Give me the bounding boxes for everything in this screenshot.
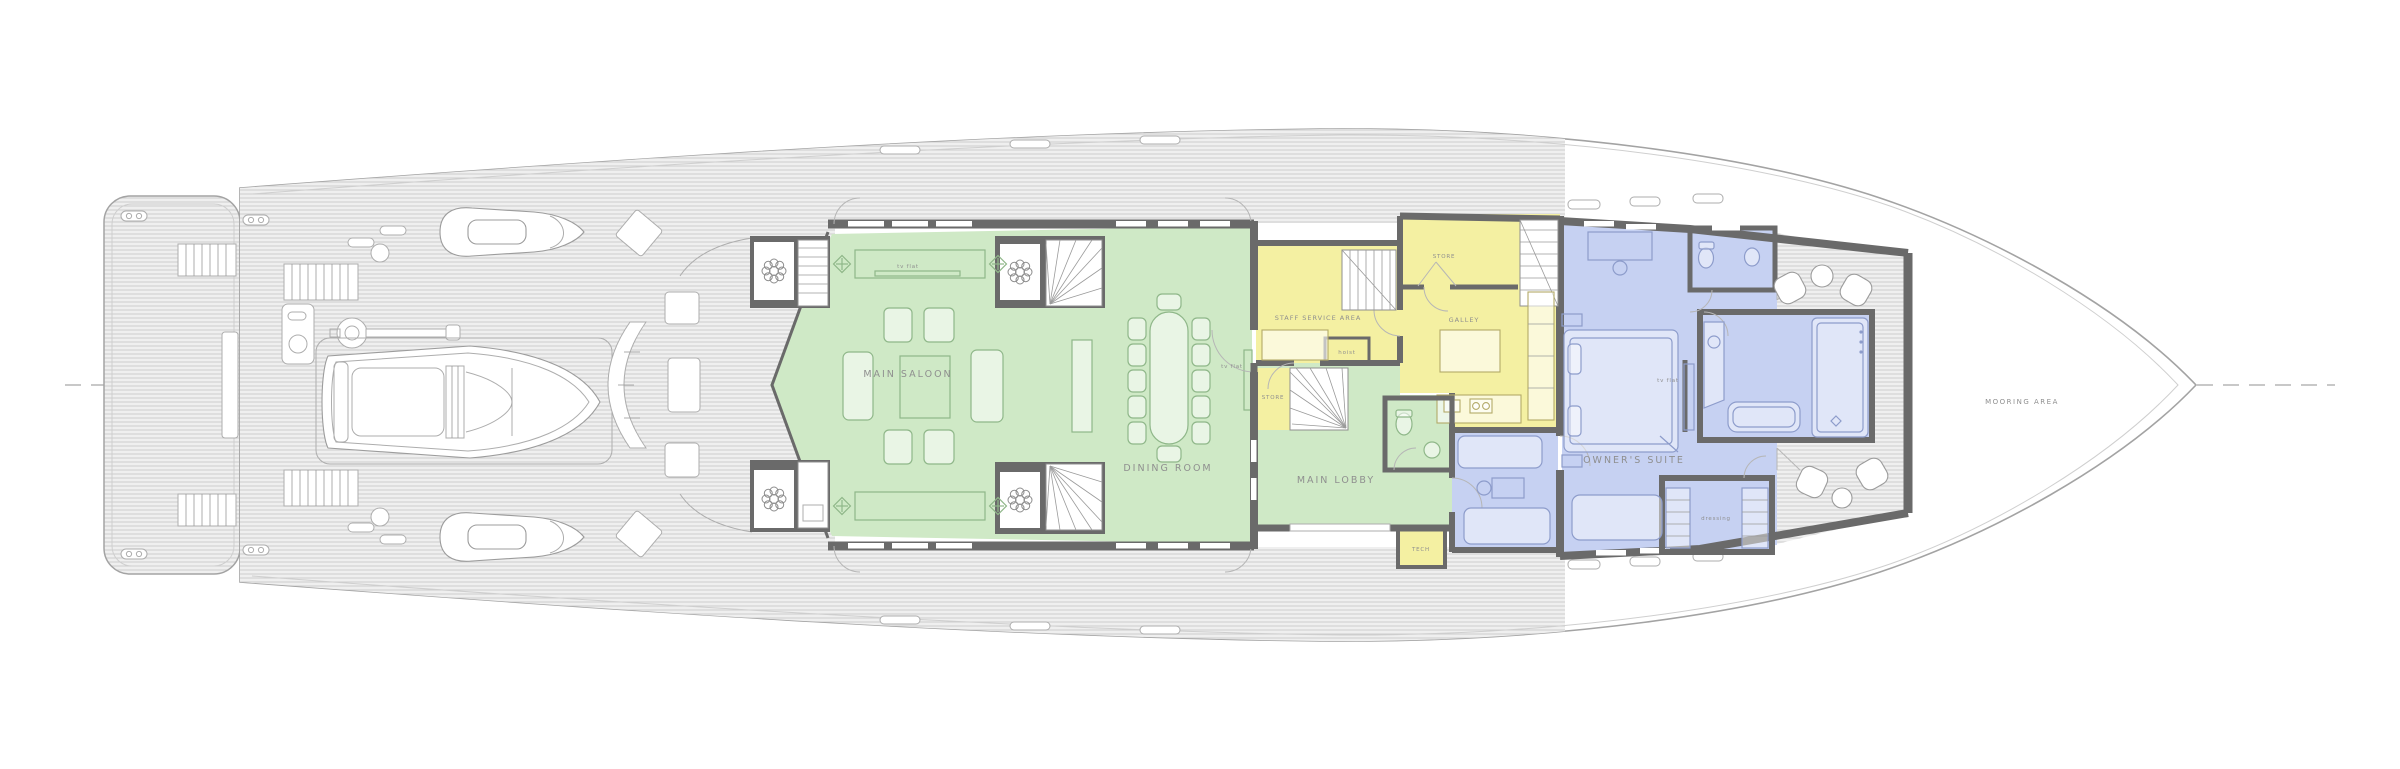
label-dressing: dressing	[1701, 516, 1731, 522]
label-mooring-area: MOORING AREA	[1985, 398, 2059, 406]
cleat	[121, 211, 147, 221]
suite-sofa	[1572, 495, 1662, 540]
label-galley: GALLEY	[1449, 316, 1480, 324]
cleat	[121, 549, 147, 559]
transom-door	[222, 332, 238, 438]
label-dining-room: DINING ROOM	[1123, 463, 1212, 474]
cleat	[243, 215, 269, 225]
wardrobe	[1666, 488, 1690, 548]
deck-plan-canvas: MAIN SALOON DINING ROOM MAIN LOBBY STAFF…	[0, 0, 2400, 769]
shower	[1812, 318, 1868, 437]
staff-stairs	[1342, 250, 1396, 310]
deck-table	[1811, 265, 1833, 287]
sofa	[1458, 436, 1542, 468]
label-tech: TECH	[1411, 547, 1430, 553]
label-tv-saloon: tv flat	[897, 264, 919, 270]
bath-vanity	[1704, 322, 1724, 408]
owners-bed	[1564, 330, 1678, 452]
staff-counter	[1262, 330, 1328, 360]
armchair	[884, 308, 912, 342]
sofa	[971, 350, 1003, 422]
sofa	[843, 352, 873, 420]
armchair	[924, 430, 954, 464]
deck-stairs-port	[284, 264, 358, 300]
label-main-saloon: MAIN SALOON	[863, 369, 952, 380]
label-staff-service: STAFF SERVICE AREA	[1275, 314, 1362, 322]
lobby-side-door	[1290, 524, 1390, 531]
dining-table	[1150, 312, 1188, 444]
toilet	[1396, 410, 1412, 435]
armchair	[924, 308, 954, 342]
sofa	[1464, 508, 1550, 544]
corner-block-aft-starboard	[750, 460, 830, 532]
corner-block-mid-port	[995, 236, 1105, 308]
lobby-stairs	[1290, 368, 1348, 430]
corner-block-mid-starboard	[995, 462, 1105, 534]
pillow	[1568, 344, 1581, 374]
side-table	[665, 292, 699, 324]
basin	[1424, 442, 1440, 458]
corner-block-aft-port	[750, 236, 830, 308]
dining-sideboard	[1072, 340, 1092, 432]
pillow	[1568, 406, 1581, 436]
label-hoist: hoist	[1338, 350, 1355, 356]
label-store-aft: STORE	[1262, 395, 1284, 401]
transom-stairs-starboard	[178, 494, 236, 526]
label-store-fwd: STORE	[1433, 254, 1455, 260]
label-owners-suite: OWNER'S SUITE	[1583, 455, 1685, 466]
deck-table	[1832, 488, 1852, 508]
galley-island	[1440, 330, 1500, 372]
side-table	[668, 358, 700, 412]
transom-stairs-port	[178, 244, 236, 276]
deck-stairs-starboard	[284, 470, 358, 506]
side-table	[665, 443, 699, 477]
label-main-lobby: MAIN LOBBY	[1297, 475, 1375, 486]
label-tv-dining: tv flat	[1221, 364, 1243, 370]
bidet	[1745, 248, 1760, 266]
label-tv-suite: tv flat	[1657, 378, 1679, 384]
wardrobe	[1742, 488, 1768, 548]
armchair	[884, 430, 912, 464]
deck-console	[282, 304, 314, 364]
stern-platform	[104, 196, 240, 574]
deck-plan-drawing: MAIN SALOON DINING ROOM MAIN LOBBY STAFF…	[0, 0, 2400, 769]
cleat	[243, 545, 269, 555]
toilet	[1699, 248, 1714, 268]
